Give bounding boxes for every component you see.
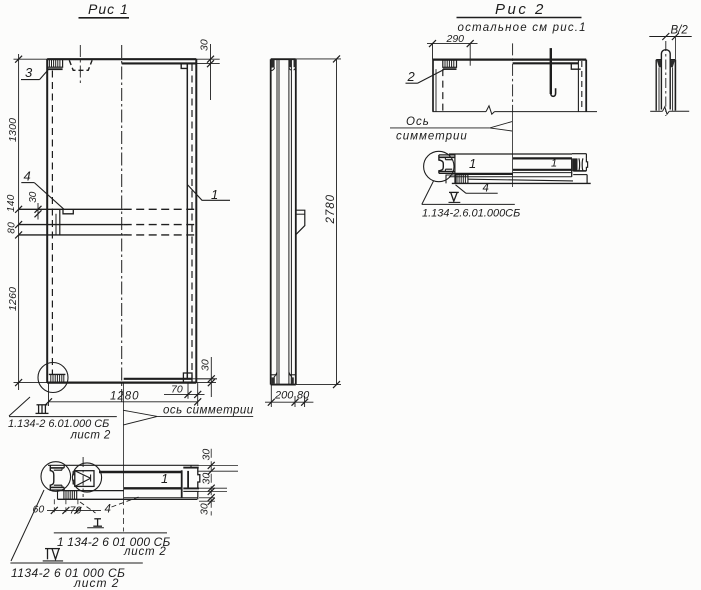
svg-text:3: 3 <box>25 65 33 80</box>
svg-text:4: 4 <box>483 183 489 195</box>
svg-text:1.134-2.6.01.000СБ: 1.134-2.6.01.000СБ <box>422 208 520 220</box>
svg-text:1300: 1300 <box>7 118 19 142</box>
svg-text:30: 30 <box>201 449 213 461</box>
svg-text:30: 30 <box>199 39 211 51</box>
svg-text:30: 30 <box>201 473 213 485</box>
svg-text:80: 80 <box>7 222 18 234</box>
svg-text:60: 60 <box>33 504 45 516</box>
svg-text:30: 30 <box>28 191 39 203</box>
svg-text:1.134-2 6.01.000 СБ: 1.134-2 6.01.000 СБ <box>8 418 109 430</box>
svg-text:30: 30 <box>200 359 212 371</box>
svg-text:Ось: Ось <box>406 116 430 128</box>
svg-text:остальное см рис.1: остальное см рис.1 <box>458 22 587 34</box>
svg-text:В/2: В/2 <box>671 25 689 37</box>
svg-text:200: 200 <box>274 390 294 402</box>
svg-text:симметрии: симметрии <box>396 131 468 143</box>
svg-text:2: 2 <box>407 69 416 84</box>
svg-text:80: 80 <box>297 390 310 402</box>
svg-text:4: 4 <box>105 504 111 516</box>
svg-text:1280: 1280 <box>110 391 140 403</box>
svg-text:1: 1 <box>469 156 476 171</box>
svg-text:1: 1 <box>161 471 168 486</box>
svg-text:1260: 1260 <box>7 287 19 311</box>
svg-text:Рис 2: Рис 2 <box>495 1 546 18</box>
svg-text:ось симметрии: ось симметрии <box>163 405 254 417</box>
svg-text:1: 1 <box>551 158 557 170</box>
svg-text:лист 2: лист 2 <box>73 576 119 590</box>
svg-text:70: 70 <box>70 505 82 517</box>
svg-text:лист 2: лист 2 <box>70 430 111 442</box>
svg-text:4: 4 <box>24 169 31 184</box>
svg-text:лист 2: лист 2 <box>123 546 167 558</box>
svg-text:70: 70 <box>171 384 183 396</box>
svg-text:140: 140 <box>6 194 17 212</box>
svg-text:Рис 1: Рис 1 <box>88 1 129 17</box>
svg-text:30: 30 <box>199 503 211 515</box>
svg-text:2780: 2780 <box>325 194 337 225</box>
